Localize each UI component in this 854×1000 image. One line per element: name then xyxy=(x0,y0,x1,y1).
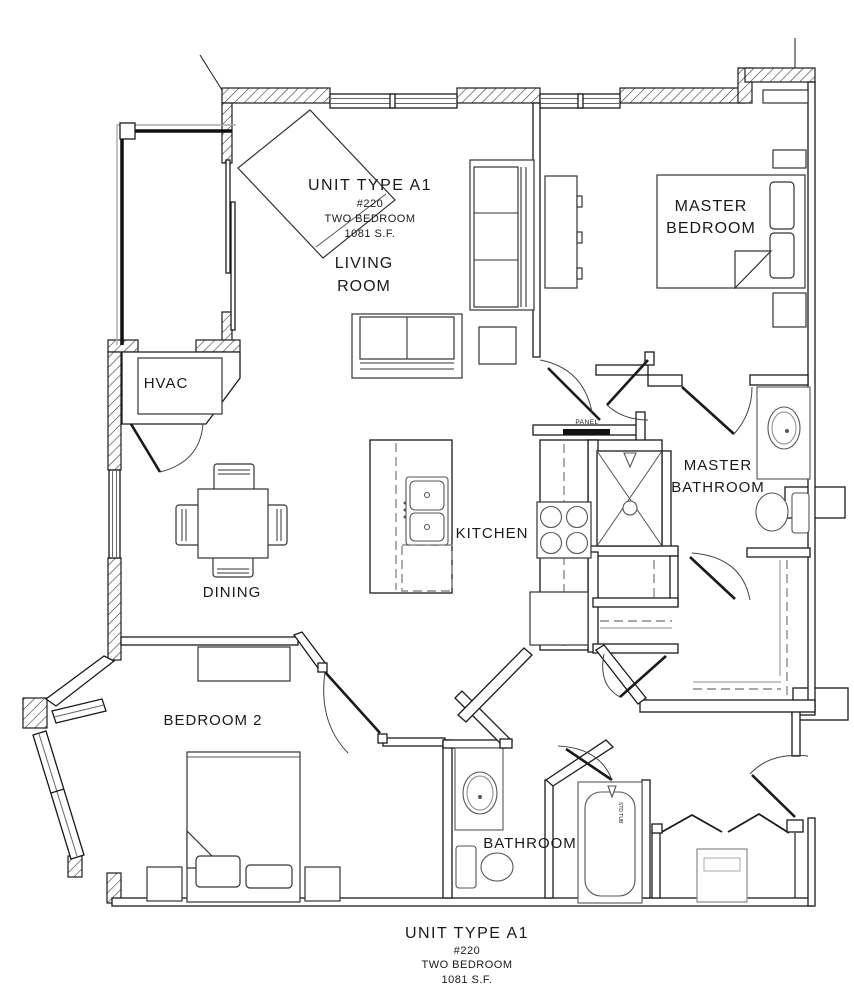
balcony xyxy=(117,123,236,345)
window-top-right xyxy=(540,94,620,108)
walkin-closet-door xyxy=(690,553,750,600)
room-label-dining: DINING xyxy=(203,584,262,601)
vanity xyxy=(455,748,503,830)
nightstand xyxy=(147,867,182,901)
master-bathroom-door xyxy=(682,387,752,434)
dining-furniture xyxy=(176,464,287,577)
master-vanity xyxy=(757,387,810,479)
unit-title-top: UNIT TYPE A1 xyxy=(308,177,432,194)
pillow xyxy=(770,233,794,278)
living-room-furniture xyxy=(238,110,582,378)
hvac-door xyxy=(131,424,203,472)
tub-label: STD TUB xyxy=(617,802,623,824)
bay-window-lower xyxy=(33,731,84,859)
range xyxy=(537,502,591,558)
loveseat xyxy=(352,314,462,378)
washer-unit xyxy=(697,849,747,902)
room-label-master-bathroom-2: BATHROOM xyxy=(671,479,765,496)
panel-label: PANEL xyxy=(575,419,598,426)
pillow xyxy=(196,856,240,887)
bathtub: STD TUB xyxy=(578,782,642,903)
unit-area-top: 1081 S.F. xyxy=(345,228,396,240)
floor-plan-page: STD TUB xyxy=(0,0,854,1000)
kitchen-fixtures xyxy=(370,440,591,650)
unit-area-bottom: 1081 S.F. xyxy=(442,974,493,986)
end-table xyxy=(479,327,516,364)
laundry-closet xyxy=(652,814,803,902)
room-label-master-bathroom-1: MASTER xyxy=(684,457,753,474)
electrical-panel xyxy=(563,429,610,435)
sofa xyxy=(470,160,534,310)
shower xyxy=(597,451,662,546)
sliding-door xyxy=(226,160,235,330)
room-label-bedroom2: BEDROOM 2 xyxy=(163,712,262,729)
unit-type-bottom: TWO BEDROOM xyxy=(421,959,512,971)
living-hall-door xyxy=(540,360,600,420)
dining-table xyxy=(198,489,268,558)
unit-number-top: #220 xyxy=(357,198,383,210)
bifold-door xyxy=(728,814,789,833)
refrigerator xyxy=(530,592,588,645)
bedroom2-furniture xyxy=(147,647,340,902)
room-label-bathroom: BATHROOM xyxy=(483,835,577,852)
pillow xyxy=(246,865,292,888)
room-label-living-1: LIVING xyxy=(335,255,393,272)
panel-symbol xyxy=(563,429,610,435)
kitchen-sink xyxy=(404,477,449,545)
dresser xyxy=(198,647,290,681)
entry-door xyxy=(750,755,808,817)
unit-title-bottom: UNIT TYPE A1 xyxy=(405,925,529,942)
master-toilet xyxy=(756,493,809,533)
window-left xyxy=(109,470,120,558)
unit-type-top: TWO BEDROOM xyxy=(324,213,415,225)
room-label-kitchen: KITCHEN xyxy=(456,525,529,542)
nightstand xyxy=(773,293,806,327)
floor-plan-drawing: STD TUB xyxy=(0,0,854,1000)
bifold-door xyxy=(660,815,722,833)
console-table xyxy=(545,176,582,288)
nightstand xyxy=(773,150,806,168)
window-top-left xyxy=(330,94,457,108)
nightstand xyxy=(305,867,340,901)
bedroom2-door xyxy=(318,663,387,753)
room-label-master-bedroom-1: MASTER xyxy=(675,198,748,215)
toilet xyxy=(456,846,513,888)
unit-number-bottom: #220 xyxy=(454,945,480,957)
pillow xyxy=(770,182,794,229)
room-label-living-2: ROOM xyxy=(337,278,391,295)
room-label-hvac: HVAC xyxy=(144,375,189,392)
dresser xyxy=(763,90,808,103)
room-label-master-bedroom-2: BEDROOM xyxy=(666,220,756,237)
